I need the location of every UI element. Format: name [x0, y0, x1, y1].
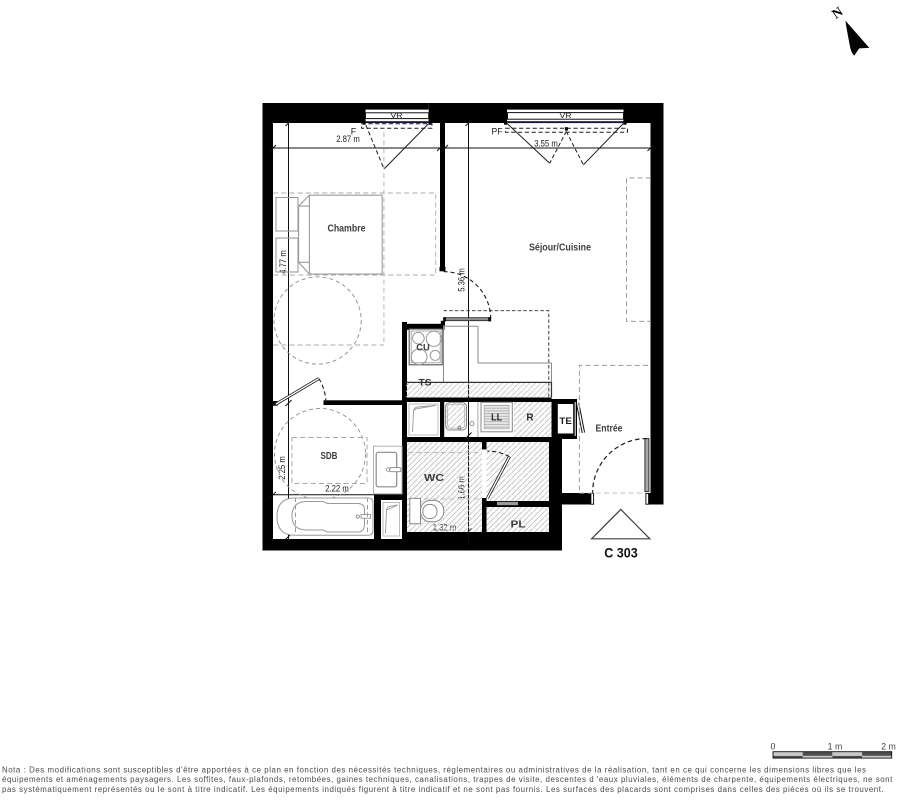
svg-text:CU: CU — [416, 343, 430, 354]
svg-text:N: N — [829, 4, 846, 22]
svg-text:TE: TE — [559, 416, 572, 427]
svg-text:TS: TS — [419, 378, 432, 389]
svg-text:1 m: 1 m — [828, 742, 843, 752]
svg-text:PL: PL — [511, 519, 527, 531]
svg-text:0: 0 — [771, 742, 776, 752]
svg-text:Séjour/Cuisine: Séjour/Cuisine — [529, 243, 591, 254]
svg-text:Chambre: Chambre — [328, 224, 366, 235]
svg-text:5.36 m: 5.36 m — [457, 268, 467, 292]
svg-text:VR: VR — [391, 111, 404, 120]
svg-text:2.25 m: 2.25 m — [277, 456, 287, 480]
svg-text:LL: LL — [491, 413, 502, 424]
svg-text:3.55 m: 3.55 m — [534, 139, 558, 149]
svg-text:équipements et aménagements pa: équipements et aménagements paysagers. L… — [2, 775, 893, 784]
svg-text:SDB: SDB — [321, 451, 338, 462]
svg-text:Entrée: Entrée — [596, 424, 623, 435]
svg-text:2.87 m: 2.87 m — [336, 134, 360, 144]
svg-text:pas systématiquement représent: pas systématiquement représentés ou le s… — [2, 785, 884, 794]
svg-text:PF: PF — [492, 127, 503, 137]
svg-text:VR: VR — [560, 111, 573, 120]
svg-text:2 m: 2 m — [881, 742, 896, 752]
svg-text:R: R — [526, 413, 534, 424]
svg-text:WC: WC — [424, 472, 444, 484]
svg-text:4.77 m: 4.77 m — [278, 250, 288, 274]
svg-text:Nota : Des modifications sont: Nota : Des modifications sont susceptibl… — [2, 766, 867, 775]
svg-text:C 303: C 303 — [604, 546, 638, 561]
